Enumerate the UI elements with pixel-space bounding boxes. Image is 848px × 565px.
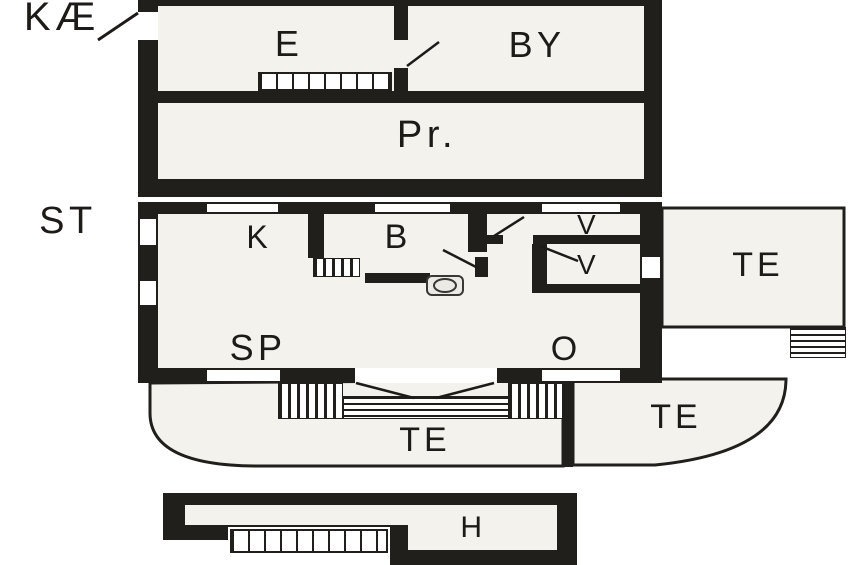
terrace-label-southeast: TE [650, 400, 702, 434]
door-swing-hall [494, 217, 524, 236]
room-label-by: BY [509, 27, 566, 63]
room-label-e: E [275, 26, 303, 62]
door-swing-b [443, 250, 478, 268]
room-label-sp: SP [230, 330, 287, 366]
room-label-v-south: V [577, 251, 599, 279]
floor-label-st: ST [39, 202, 97, 240]
floor-label-kae: KÆ [24, 0, 100, 37]
room-label-h: H [460, 513, 485, 543]
door-swing-terrace-right [436, 383, 494, 398]
room-label-o: O [551, 332, 582, 366]
kae-pointer-line [98, 13, 138, 40]
room-label-v-north: V [577, 211, 599, 239]
lines-layer [0, 0, 848, 565]
door-swing-e-by [407, 42, 439, 66]
room-label-pr: Pr. [397, 116, 457, 154]
door-swing-terrace-left [356, 383, 414, 398]
door-swing-v2 [540, 246, 578, 261]
terrace-label-east: TE [732, 248, 784, 282]
floor-plan: KÆ ST E BY Pr. K B V V SP O TE TE TE H [0, 0, 848, 565]
room-label-k: K [246, 221, 271, 253]
toilet-fixture-icon [427, 276, 463, 295]
room-label-b: B [385, 220, 412, 254]
terrace-label-south: TE [399, 423, 451, 457]
